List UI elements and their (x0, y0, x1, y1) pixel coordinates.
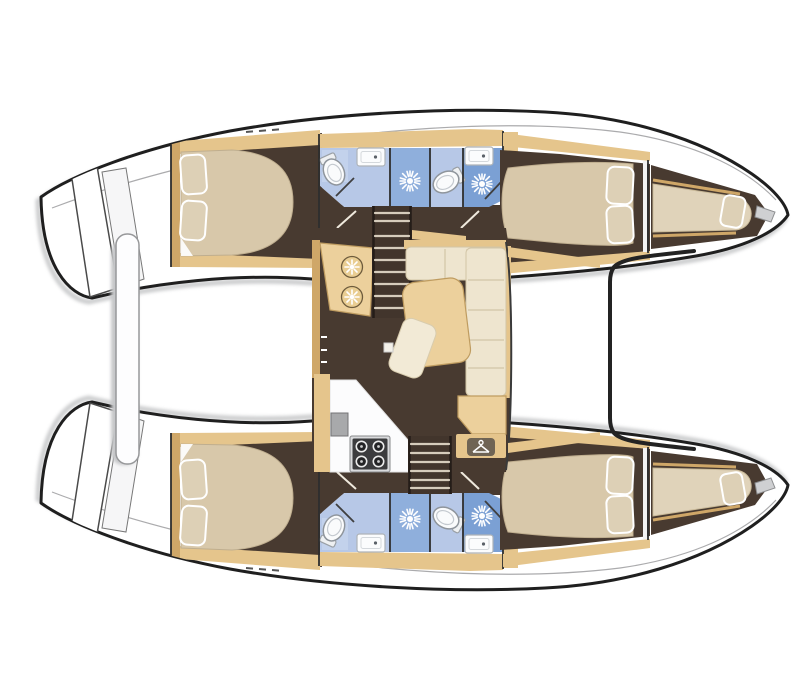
wardrobe-hanger-icon (456, 434, 506, 458)
stove-icon (350, 436, 390, 472)
catamaran-floor-plan: Catamaran yacht interior layout — top-vi… (0, 0, 800, 700)
galley-appliance (331, 413, 348, 436)
stool (384, 343, 393, 352)
floor-plan-canvas: Catamaran yacht interior layout — top-vi… (0, 0, 800, 700)
trampoline-edge (610, 251, 694, 449)
companionway-stairs-starboard (408, 436, 452, 494)
davits-bar (111, 234, 139, 465)
